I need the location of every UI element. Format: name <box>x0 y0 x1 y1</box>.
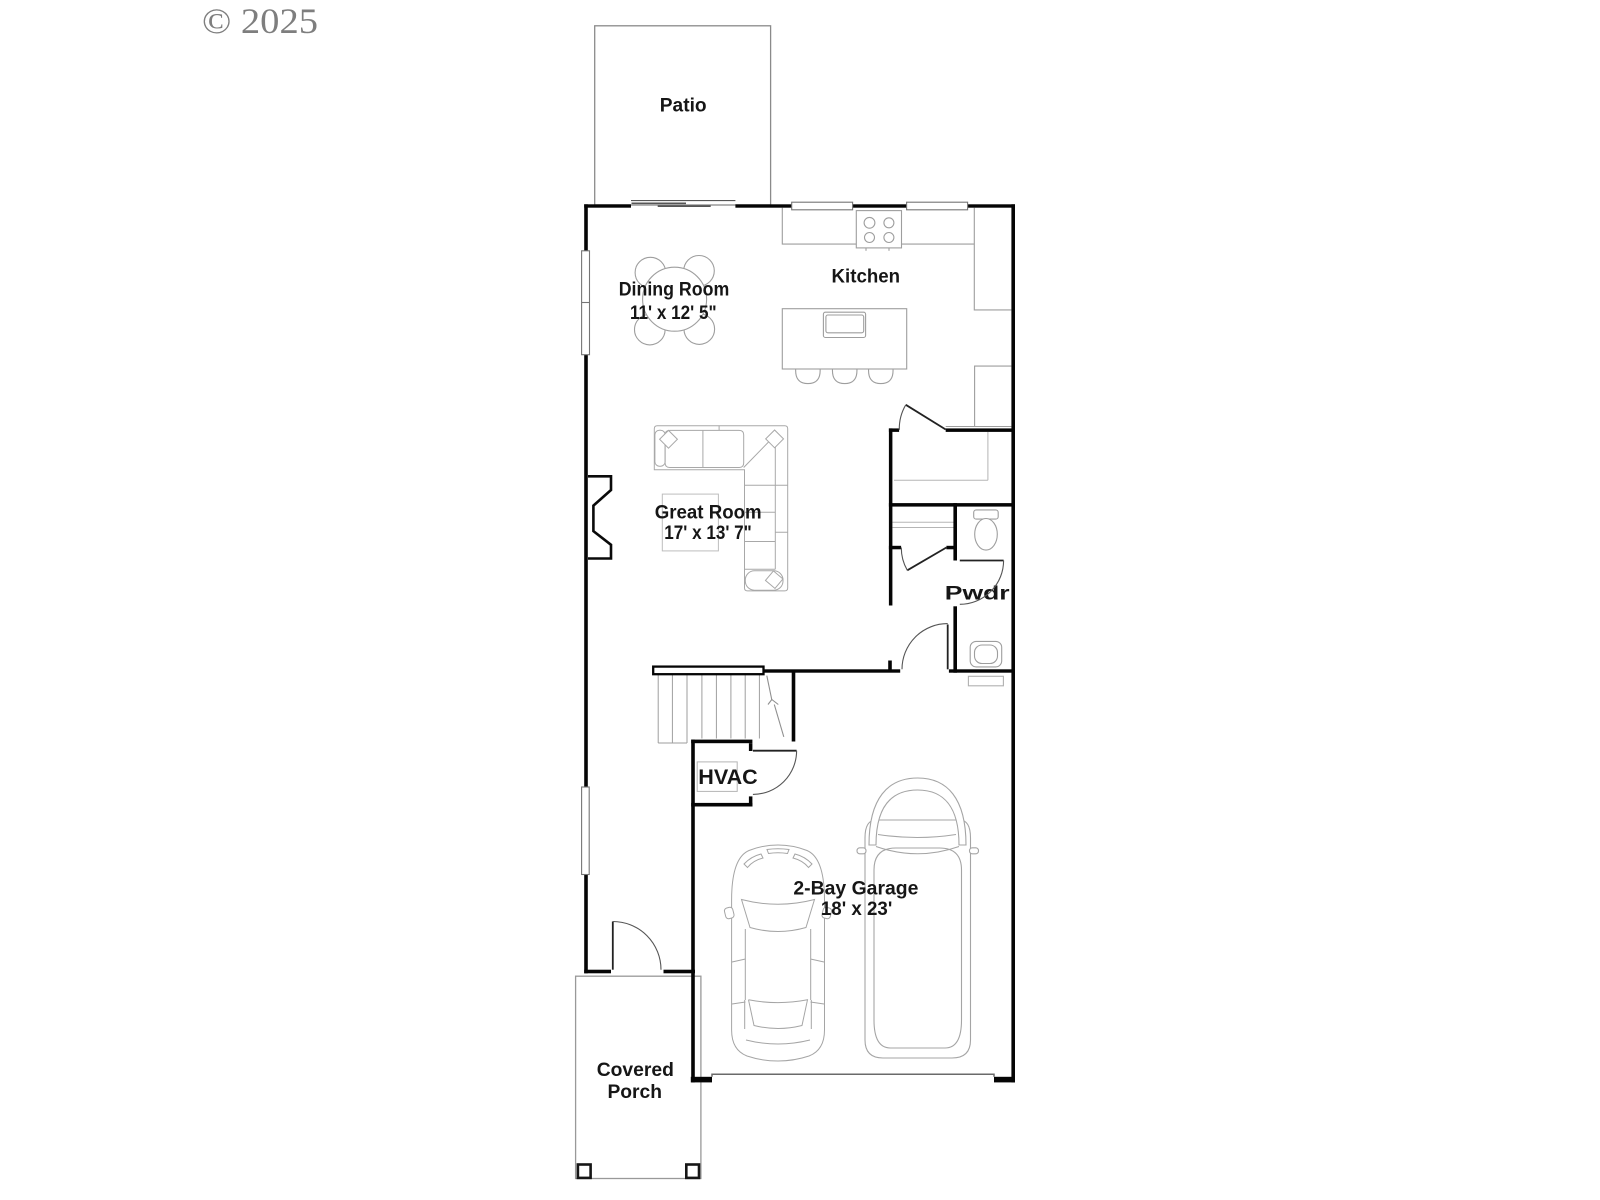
svg-text:11' x 12' 5": 11' x 12' 5" <box>630 302 717 324</box>
svg-text:Covered: Covered <box>597 1059 674 1081</box>
svg-text:Kitchen: Kitchen <box>832 265 901 287</box>
svg-text:Great Room: Great Room <box>655 501 762 523</box>
svg-text:Patio: Patio <box>660 94 707 116</box>
svg-text:Porch: Porch <box>607 1081 662 1103</box>
svg-text:Dining Room: Dining Room <box>619 279 730 301</box>
svg-text:17' x 13' 7": 17' x 13' 7" <box>664 522 752 544</box>
svg-text:HVAC: HVAC <box>698 766 758 789</box>
svg-text:© 2025: © 2025 <box>202 1 318 41</box>
svg-text:2-Bay Garage: 2-Bay Garage <box>793 878 918 900</box>
svg-text:18' x 23': 18' x 23' <box>821 898 892 920</box>
